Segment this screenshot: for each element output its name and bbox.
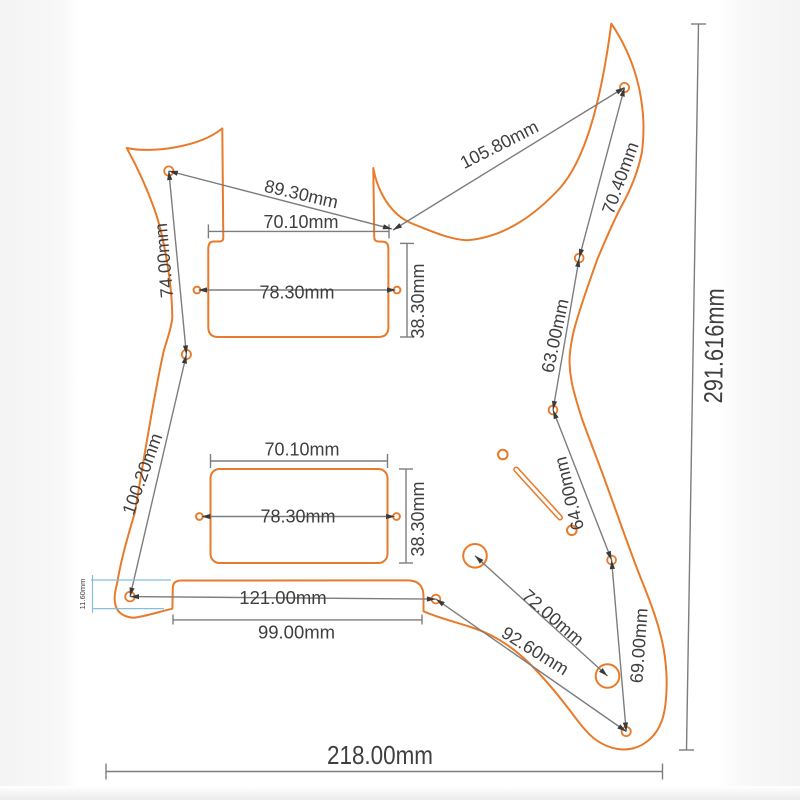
svg-text:99.00mm: 99.00mm [258, 622, 335, 643]
svg-text:218.00mm: 218.00mm [327, 740, 433, 770]
svg-text:78.30mm: 78.30mm [259, 283, 334, 303]
svg-text:11.60mm: 11.60mm [78, 579, 87, 610]
svg-text:38.30mm: 38.30mm [408, 263, 428, 338]
svg-text:70.10mm: 70.10mm [263, 212, 338, 232]
svg-text:38.30mm: 38.30mm [408, 481, 428, 556]
svg-text:78.30mm: 78.30mm [260, 507, 335, 527]
svg-text:70.10mm: 70.10mm [264, 440, 339, 460]
svg-text:121.00mm: 121.00mm [239, 587, 326, 608]
svg-text:291.616mm: 291.616mm [698, 288, 730, 404]
